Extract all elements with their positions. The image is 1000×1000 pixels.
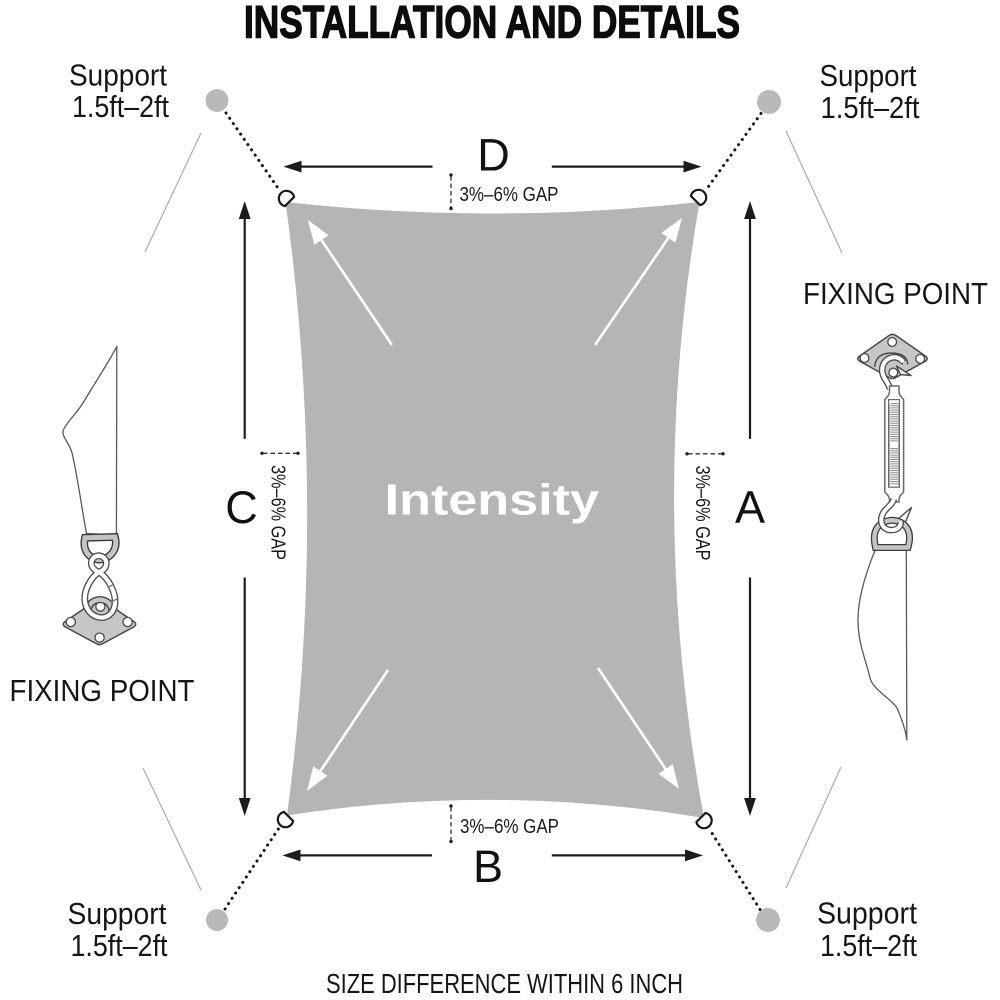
svg-text:Support: Support bbox=[820, 58, 917, 93]
svg-text:B: B bbox=[473, 841, 503, 892]
svg-text:D: D bbox=[477, 130, 510, 181]
svg-text:FIXING POINT: FIXING POINT bbox=[10, 673, 195, 708]
svg-text:C: C bbox=[225, 482, 258, 533]
svg-text:SIZE DIFFERENCE WITHIN 6 INCH: SIZE DIFFERENCE WITHIN 6 INCH bbox=[326, 968, 683, 999]
svg-text:1.5ft–2ft: 1.5ft–2ft bbox=[820, 928, 917, 963]
svg-text:3%–6% GAP: 3%–6% GAP bbox=[460, 184, 559, 206]
svg-text:1.5ft–2ft: 1.5ft–2ft bbox=[72, 89, 169, 124]
svg-text:Support: Support bbox=[69, 58, 167, 93]
svg-text:A: A bbox=[735, 482, 765, 533]
svg-text:INSTALLATION AND DETAILS: INSTALLATION AND DETAILS bbox=[244, 0, 740, 48]
svg-text:3%–6% GAP: 3%–6% GAP bbox=[691, 466, 713, 561]
svg-text:Support: Support bbox=[68, 896, 167, 931]
svg-text:FIXING POINT: FIXING POINT bbox=[803, 276, 988, 311]
svg-text:Support: Support bbox=[817, 896, 917, 931]
svg-text:Intensity: Intensity bbox=[385, 475, 600, 524]
svg-text:3%–6% GAP: 3%–6% GAP bbox=[460, 816, 559, 838]
svg-text:3%–6% GAP: 3%–6% GAP bbox=[267, 465, 289, 560]
svg-text:1.5ft–2ft: 1.5ft–2ft bbox=[821, 90, 920, 125]
svg-text:1.5ft–2ft: 1.5ft–2ft bbox=[71, 928, 168, 963]
